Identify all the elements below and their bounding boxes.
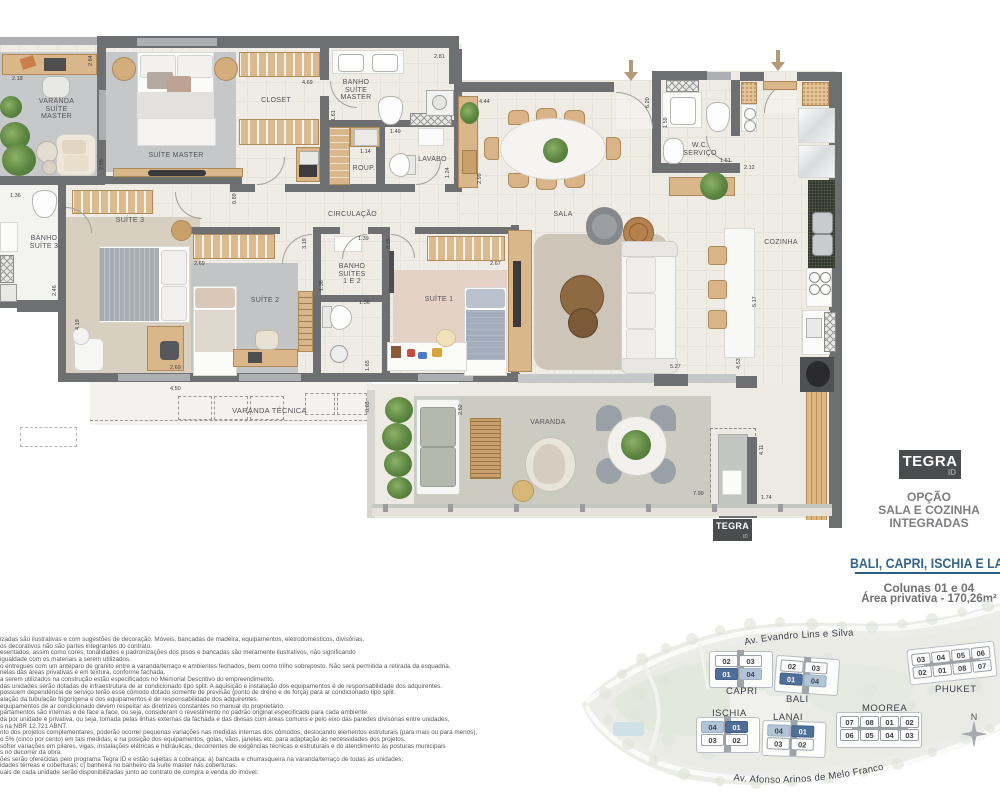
- svg-text:N: N: [971, 712, 978, 722]
